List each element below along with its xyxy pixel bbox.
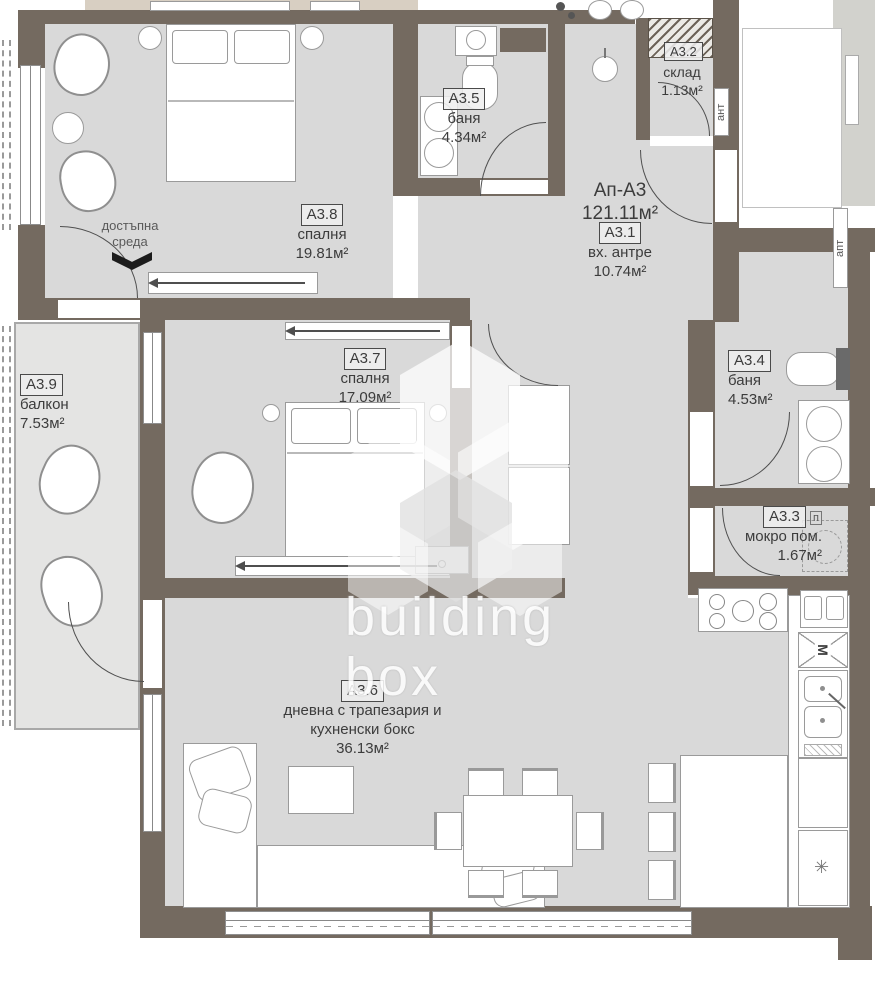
dining-table [463,795,573,867]
sink [806,446,842,482]
kitchen-island [680,755,788,908]
room-area-a35: 4.34м² [442,129,487,146]
room-label-a37: A3.7 спалня 17.09м² [322,348,408,408]
room-code-a32: A3.2 [664,42,703,61]
pillow [172,30,228,64]
room-area-a33: 1.67м² [777,547,822,564]
vertical-label-apt-text: апт [834,239,846,256]
accessible-line2: среда [112,234,148,249]
neighbor-room [742,28,842,208]
dining-chair [522,768,558,796]
kitchen-module-door [804,596,822,620]
room-label-a32: A3.2 [664,42,703,62]
drainboard [804,744,842,756]
floor-plan: М ✳ A3.8 спалня 19.81м² A3.5 баня 4.34м²… [0,0,875,1000]
apartment-name: Ап-А3 [594,180,647,201]
drain-stem [604,48,606,58]
room-label-a38: A3.8 спалня 19.81м² [272,204,372,264]
neighbor-furniture [150,1,290,11]
side-table [52,112,84,144]
sink [806,406,842,442]
room-code-a37: A3.7 [344,348,387,370]
kitchen-cabinet [798,758,848,828]
accessible-line1: достъпна [102,218,159,233]
door-opening-storage [650,136,713,146]
door-opening-a38 [58,300,140,318]
room-area-a31: 10.74м² [594,263,647,280]
storage-area: 1.13м² [661,82,703,98]
neighbor-sink [588,0,612,20]
room-code-a35: A3.5 [443,88,486,110]
burner [759,593,777,611]
room-name-a38: спалня [297,226,346,243]
vertical-label-ant: ант [714,88,729,136]
neighbor-label-box [845,55,859,125]
window [225,911,430,935]
room-area-a39: 7.53м² [20,415,65,432]
room-name-a37: спалня [340,370,389,387]
niche [500,28,546,52]
vertical-label-apt: апт [833,208,848,288]
wall [838,906,872,960]
rail-arrowhead [285,326,295,336]
blanket-line [168,100,294,102]
rail-arrowhead [148,278,158,288]
rail-arrow [292,330,440,332]
room-code-a39: A3.9 [20,374,63,396]
bar-stool [648,812,676,852]
room-code-a34: A3.4 [728,350,771,372]
burner [732,600,754,622]
room-name-a35: баня [448,110,481,127]
pillow [291,408,351,444]
door-opening-a33 [690,508,713,572]
dining-chair [434,812,462,850]
coffee-table [288,766,354,814]
nightstand-lamp [138,26,162,50]
wall [548,10,565,178]
window [143,332,162,424]
floor-drain [592,56,618,82]
sink-drain [820,718,825,723]
entry-door-opening [715,150,737,222]
microwave-label: М [815,643,831,657]
room-label-a35: A3.5 баня 4.34м² [424,88,504,148]
burner [759,612,777,630]
kitchen-module-door [826,596,844,620]
room-label-a34: A3.4 баня 4.53м² [728,350,798,410]
freezer-symbol: ✳ [814,857,829,878]
bar-stool [648,763,676,803]
watermark-text-line2: box [345,646,441,708]
vertical-label-ant-text: ант [715,103,727,120]
nightstand-lamp [262,404,280,422]
bar-stool [648,860,676,900]
window [143,694,162,832]
room-label-a31: A3.1 вх. антре 10.74м² [558,222,682,282]
burner [709,594,725,610]
microwave-box: М [798,632,848,668]
wet-symbol: п [810,511,822,525]
room-area-a36: 36.13м² [336,740,389,757]
room-label-a33: A3.3 п мокро пом. 1.67м² [740,506,848,566]
room-code-a31: A3.1 [599,222,642,244]
burner [709,613,725,629]
neighbor-furniture [310,1,360,11]
dining-chair [522,870,558,898]
dining-chair [468,870,504,898]
dining-chair [468,768,504,796]
wall [713,488,875,506]
stove [698,588,788,632]
window-railing-left [2,40,11,230]
balcony-railing [2,326,11,726]
room-label-a39: A3.9 балкон 7.53м² [14,374,106,434]
fixture-dot [568,12,575,19]
room-code-a38: A3.8 [301,204,344,226]
toilet-tank [466,56,494,66]
wall [25,10,635,24]
apartment-label: Ап-А3 121.11м² [558,180,682,226]
neighbor-sink [620,0,644,20]
fridge: ✳ [798,830,848,906]
room-area-a37: 17.09м² [339,389,392,406]
rail-arrowhead [235,561,245,571]
storage-name: склад [663,64,700,80]
door-opening-balcony [143,600,162,688]
washing-machine-door [466,30,486,50]
room-name-a39: балкон [20,396,69,413]
room-area-a34: 4.53м² [728,391,773,408]
room-code-a33: A3.3 [763,506,806,528]
accessible-note: достъпна среда [90,218,170,251]
window [20,65,41,225]
rail-arrow [155,282,305,284]
watermark-text-line1: building [345,586,555,648]
dining-chair [576,812,604,850]
room-name-a31: вх. антре [588,244,652,261]
room-name-a34: баня [728,372,761,389]
nightstand-lamp [300,26,324,50]
wall [18,10,45,68]
fixture-dot [556,2,565,11]
window [432,911,692,935]
apartment-area: 121.11м² [582,203,658,224]
toilet-cistern [836,348,850,390]
sink-drain [820,686,825,691]
door-opening-a34 [690,412,713,486]
room-area-a38: 19.81м² [296,245,349,262]
wall [393,10,418,178]
room-label-storage: склад 1.13м² [648,64,716,99]
pillow [234,30,290,64]
room-name-a33: мокро пом. [745,528,822,545]
